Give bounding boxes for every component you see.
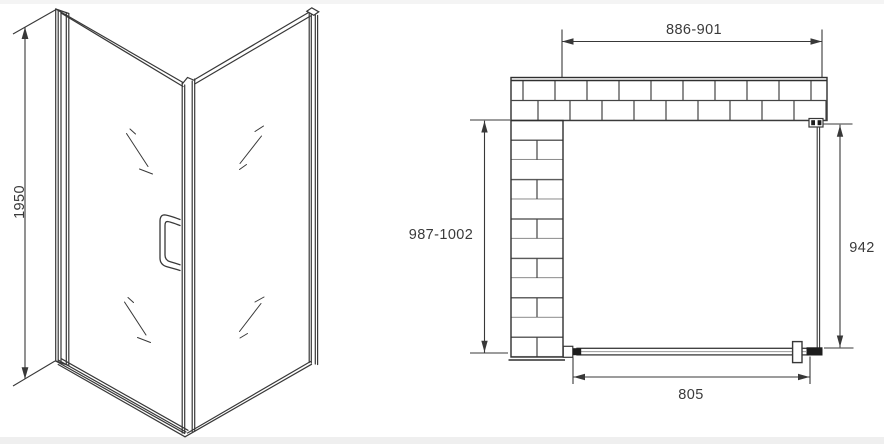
corner-post <box>182 78 195 434</box>
door-width-dimension-label: 805 <box>678 387 703 403</box>
dim-panel-942 <box>823 124 854 348</box>
wall-bracket-screw <box>811 120 815 125</box>
arrow-up <box>837 125 843 137</box>
corner-connector-block <box>807 347 823 355</box>
drawing-canvas: 1950 886-901 987-1002 942 805 <box>0 0 884 444</box>
door-panel-plan <box>563 342 822 363</box>
door-panel-top-edge <box>56 9 183 87</box>
side-panel-top-edge <box>195 13 311 85</box>
dimension-lines <box>13 9 854 386</box>
fixed-glass-panel <box>809 119 823 349</box>
right-frame-profile <box>307 8 319 365</box>
fixed-glass-line <box>817 127 819 349</box>
depth-dimension-label: 987-1002 <box>409 227 473 243</box>
arrow-right <box>811 38 823 44</box>
arrow-up <box>481 121 487 133</box>
dim-depth-987-1002 <box>470 120 510 353</box>
arrow-right <box>798 374 810 380</box>
front-3d-view <box>56 8 319 437</box>
height-dimension-label: 1950 <box>12 185 28 219</box>
door-hinge-bracket <box>563 346 573 357</box>
opening-width-dimension-label: 886-901 <box>666 22 722 38</box>
plan-view <box>509 78 828 363</box>
right-frame-top-cap <box>307 8 319 16</box>
arrow-down <box>837 336 843 348</box>
door-knob-plan <box>793 342 802 363</box>
top-wall-bricks <box>511 81 827 121</box>
bottom-rails <box>56 359 312 437</box>
scan-band-bottom <box>0 437 884 444</box>
arrow-down <box>481 341 487 353</box>
side-wall-outline <box>511 121 563 358</box>
wall-bracket-screw <box>818 120 822 125</box>
left-wall-profile <box>56 9 69 366</box>
arrow-left <box>562 38 574 44</box>
arrow-left <box>574 374 586 380</box>
scan-band-top <box>0 0 884 4</box>
dim-door-805 <box>573 357 810 385</box>
door-handle <box>160 215 180 271</box>
walls <box>509 78 828 361</box>
fixed-panel-dimension-label: 942 <box>849 240 874 256</box>
door-hinge-block <box>573 348 581 355</box>
shower-enclosure-technical-drawing <box>0 0 884 444</box>
